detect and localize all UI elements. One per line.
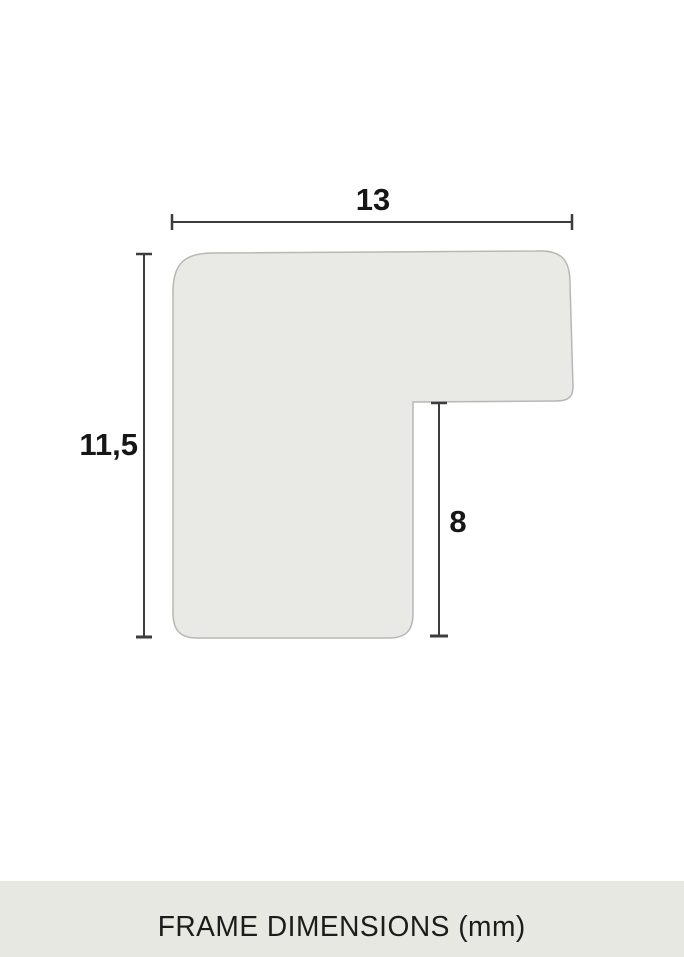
height-dimension-line bbox=[136, 254, 152, 637]
footer-bar: FRAME DIMENSIONS (mm) bbox=[0, 881, 684, 957]
frame-profile-shape bbox=[173, 251, 573, 638]
width-dimension-label: 13 bbox=[333, 184, 413, 215]
notch-dimension-label: 8 bbox=[438, 506, 478, 537]
footer-title: FRAME DIMENSIONS (mm) bbox=[158, 912, 526, 942]
frame-dimensions-page: 13 11,5 8 FRAME DIMENSIONS (mm) bbox=[0, 0, 684, 957]
frame-profile-diagram bbox=[0, 0, 684, 957]
height-dimension-label: 11,5 bbox=[40, 429, 138, 460]
